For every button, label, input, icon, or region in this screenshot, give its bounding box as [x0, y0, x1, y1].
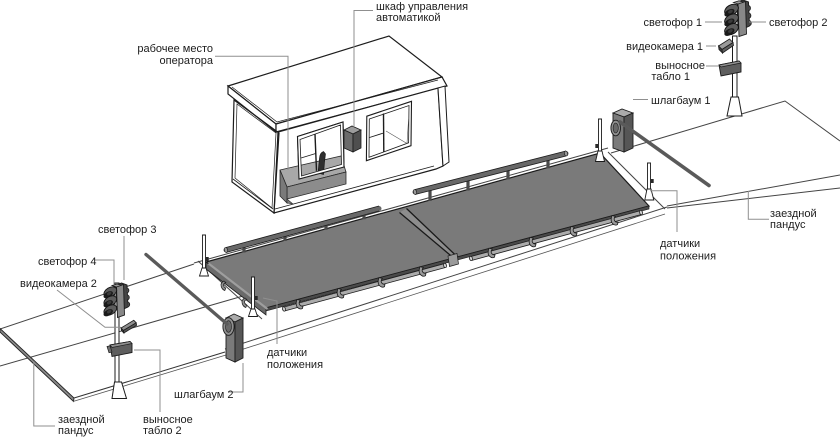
svg-text:табло 1: табло 1	[651, 71, 690, 83]
svg-text:шлагбаум 1: шлагбаум 1	[651, 95, 711, 107]
svg-text:светофор 1: светофор 1	[644, 17, 702, 29]
svg-text:пандус: пандус	[58, 425, 94, 437]
svg-text:светофор 4: светофор 4	[38, 256, 96, 268]
svg-text:пандус: пандус	[770, 219, 806, 231]
svg-text:оператора: оператора	[160, 55, 214, 67]
svg-text:автоматикой: автоматикой	[376, 12, 441, 24]
svg-text:датчики: датчики	[660, 238, 700, 250]
svg-text:датчики: датчики	[267, 347, 307, 359]
svg-text:видеокамера 1: видеокамера 1	[626, 41, 703, 53]
svg-text:светофор 2: светофор 2	[769, 17, 827, 29]
svg-text:шлагбаум 2: шлагбаум 2	[174, 389, 234, 401]
svg-text:видеокамера 2: видеокамера 2	[20, 278, 97, 290]
svg-text:рабочее место: рабочее место	[137, 43, 213, 55]
svg-text:положения: положения	[267, 359, 323, 371]
svg-text:положения: положения	[660, 251, 716, 263]
svg-text:светофор 3: светофор 3	[98, 224, 156, 236]
svg-text:табло 2: табло 2	[143, 425, 182, 437]
